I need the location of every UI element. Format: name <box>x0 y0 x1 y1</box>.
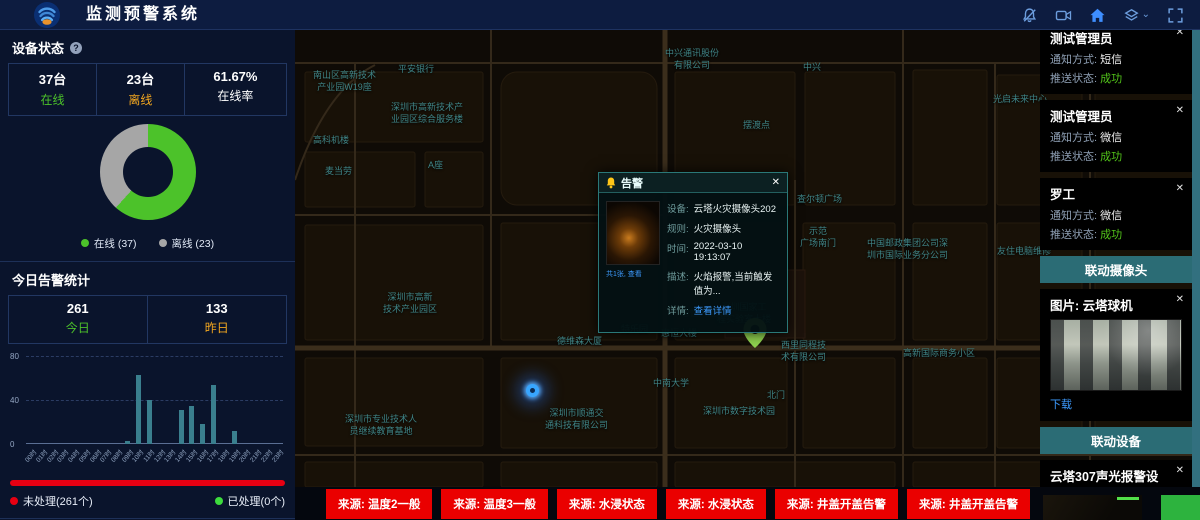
chart-bar-slot: 19时 <box>229 356 240 444</box>
unprocessed-legend-item: 未处理(261个) <box>10 493 93 509</box>
stat-label: 今日 <box>11 319 145 336</box>
red-dot-icon <box>10 497 18 505</box>
map-poi-label: 光启未来中心 <box>993 94 1047 106</box>
chart-bar-slot: 16时 <box>197 356 208 444</box>
close-icon[interactable]: ✕ <box>772 177 780 188</box>
card-row-value: 微信 <box>1100 210 1122 222</box>
close-icon[interactable]: ✕ <box>1176 105 1184 116</box>
fullscreen-icon[interactable] <box>1167 7 1184 24</box>
map-poi-label: A座 <box>428 160 443 172</box>
alert-field-label: 时间: <box>667 241 689 263</box>
legend-dot-icon <box>159 239 167 247</box>
device-status-chart-area <box>0 116 295 228</box>
alert-field-value: 云塔火灾摄像头202 <box>694 201 776 215</box>
card-row-label: 推送状态: <box>1050 229 1100 241</box>
card-row-value: 成功 <box>1100 151 1122 163</box>
chevron-down-icon: ⌄ <box>1142 10 1150 20</box>
stat-value: 61.67% <box>187 69 284 84</box>
map-poi-label: 深圳市高新技术产 业园区综合服务楼 <box>391 102 463 125</box>
map-poi-label: 深圳市顺通交 通科技有限公司 <box>545 408 608 431</box>
unprocessed-progress-bar <box>10 480 285 486</box>
alert-field-row: 规则:火灾摄像头 <box>667 221 780 235</box>
alert-snapshot-image <box>606 201 660 265</box>
card-rows: 通知方式: 微信推送状态: 成功 <box>1050 129 1182 164</box>
card-row-value: 成功 <box>1100 229 1122 241</box>
map-poi-label: 中兴 <box>803 62 821 74</box>
chart-bar-slot: 14时 <box>176 356 187 444</box>
chart-bar <box>125 441 130 444</box>
stat-label: 离线 <box>99 91 182 108</box>
card-title: 测试管理员 <box>1050 28 1182 47</box>
chart-bar <box>211 385 216 444</box>
notification-list: 测试管理员✕通知方式: 短信推送状态: 成功测试管理员✕通知方式: 微信推送状态… <box>1040 22 1192 250</box>
map-poi-label: 查尔顿广场 <box>797 194 842 206</box>
legend-label: 离线 (23) <box>172 236 215 251</box>
stat-value: 133 <box>150 301 285 316</box>
map-poi-label: 中兴通讯股份 有限公司 <box>665 48 719 71</box>
chart-bar <box>136 375 141 444</box>
stat-value: 37台 <box>11 69 94 88</box>
chart-bar-slot: 05时 <box>80 356 91 444</box>
card-row: 推送状态: 成功 <box>1050 226 1182 242</box>
chart-bar-slot: 22时 <box>261 356 272 444</box>
today-alarm-section-title: 今日告警统计 <box>0 262 295 295</box>
stat-value: 23台 <box>99 69 182 88</box>
map-poi-label: 平安银行 <box>398 64 434 76</box>
alert-popup-body: 共1张, 查看 设备:云塔火灾摄像头202规则:火灾摄像头时间:2022-03-… <box>599 193 787 332</box>
chart-bar <box>147 400 152 444</box>
alert-field-row: 时间:2022-03-10 19:13:07 <box>667 241 780 263</box>
notification-card: 测试管理员✕通知方式: 短信推送状态: 成功 <box>1040 22 1192 94</box>
device-locator-dot[interactable] <box>526 384 539 397</box>
video-camera-icon[interactable] <box>1055 7 1072 24</box>
view-details-link[interactable]: 查看详情 <box>694 303 732 317</box>
stat-cell: 23台离线 <box>97 64 185 115</box>
legend-item: 在线 (37) <box>81 236 137 251</box>
map-poi-label: 高科机楼 <box>313 135 349 147</box>
card-row-label: 推送状态: <box>1050 73 1100 85</box>
chart-bar-slot: 11时 <box>144 356 155 444</box>
alert-source-chip[interactable]: 来源: 井盖开盖告警 <box>907 489 1030 519</box>
chart-bar-slot: 13时 <box>165 356 176 444</box>
chart-bar <box>189 406 194 445</box>
y-axis-tick-label: 40 <box>10 396 19 405</box>
chart-bar-slot: 15时 <box>187 356 198 444</box>
camera-card-title: 图片: 云塔球机 <box>1050 295 1182 314</box>
alert-popup-title: 告警 <box>621 175 643 191</box>
map-poi-label: 北门 <box>767 390 785 402</box>
unprocessed-label: 未处理(261个) <box>23 493 93 509</box>
hourly-alarm-bar-chart: 00时01时02时03时04时05时06时07时08时09时10时11时12时1… <box>10 350 285 470</box>
map-poi-label: 德维森大厦 <box>557 336 602 348</box>
chart-bar-slot: 08时 <box>112 356 123 444</box>
stat-label: 在线率 <box>187 87 284 104</box>
today-alarm-title-text: 今日告警统计 <box>12 270 90 289</box>
card-row-label: 通知方式: <box>1050 210 1100 222</box>
map-poi-label: 麦当劳 <box>325 166 352 178</box>
chart-bar-slot: 06时 <box>90 356 101 444</box>
card-row: 推送状态: 成功 <box>1050 148 1182 164</box>
chart-bar-slot: 02时 <box>47 356 58 444</box>
chart-bar-slot: 03时 <box>58 356 69 444</box>
chart-bar-slot: 17时 <box>208 356 219 444</box>
stat-label: 在线 <box>11 91 94 108</box>
device-status-title-text: 设备状态 <box>12 38 64 57</box>
video-thumbnail-dark[interactable] <box>1043 495 1142 520</box>
legend-item: 离线 (23) <box>159 236 215 251</box>
card-title: 罗工 <box>1050 184 1182 203</box>
linked-device-header: 联动设备 <box>1040 427 1192 454</box>
alert-source-chip[interactable]: 来源: 水浸状态 <box>557 489 657 519</box>
card-row-label: 通知方式: <box>1050 54 1100 66</box>
chart-bar <box>179 410 184 444</box>
legend-label: 在线 (37) <box>94 236 137 251</box>
map-poi-label: 高新国际商务小区 <box>903 348 975 360</box>
layers-menu[interactable]: ⌄ <box>1123 7 1150 24</box>
layers-icon <box>1123 7 1140 24</box>
map-poi-label: 深圳市高新 技术产业园区 <box>383 292 437 315</box>
alert-source-chip[interactable]: 来源: 温度2一般 <box>326 489 432 519</box>
card-row-label: 推送状态: <box>1050 151 1100 163</box>
help-icon[interactable]: ? <box>70 42 82 54</box>
snapshot-view-link[interactable]: 共1张, 查看 <box>606 269 660 279</box>
alert-field-label: 详情: <box>667 303 689 317</box>
chart-bar <box>200 424 205 444</box>
legend-dot-icon <box>81 239 89 247</box>
chart-bar <box>232 431 237 444</box>
card-row: 通知方式: 短信 <box>1050 51 1182 67</box>
alert-popup-header: 告警 ✕ <box>599 173 787 193</box>
card-row: 通知方式: 微信 <box>1050 129 1182 145</box>
chart-bar-slot: 18时 <box>219 356 230 444</box>
alert-source-chip[interactable]: 来源: 温度3一般 <box>441 489 547 519</box>
map-poi-label: 深圳市专业技术人 员继续教育基地 <box>345 414 417 437</box>
close-icon[interactable]: ✕ <box>1176 183 1184 194</box>
progress-legend: 未处理(261个) 已处理(0个) <box>10 493 285 509</box>
page-title: 监测预警系统 <box>86 0 200 30</box>
card-row: 推送状态: 成功 <box>1050 70 1182 86</box>
map-poi-label: 深圳市数字技术园 <box>703 406 775 418</box>
stat-cell: 37台在线 <box>9 64 97 115</box>
alert-field-value: 2022-03-10 19:13:07 <box>694 241 780 263</box>
linked-camera-card: 图片: 云塔球机 ✕ 下载 <box>1040 289 1192 421</box>
card-title: 测试管理员 <box>1050 106 1182 125</box>
chart-bar-slot: 09时 <box>122 356 133 444</box>
map-poi-label: 西里同程技 术有限公司 <box>781 340 826 363</box>
stat-label: 昨日 <box>150 319 285 336</box>
donut-legend: 在线 (37)离线 (23) <box>0 234 295 252</box>
chart-bars: 00时01时02时03时04时05时06时07时08时09时10时11时12时1… <box>26 356 283 444</box>
map-poi-label: 示范 广场南门 <box>800 226 836 249</box>
alert-source-chip[interactable]: 来源: 水浸状态 <box>666 489 766 519</box>
card-rows: 通知方式: 短信推送状态: 成功 <box>1050 51 1182 86</box>
bell-muted-icon[interactable] <box>1021 7 1038 24</box>
alert-source-chip[interactable]: 来源: 井盖开盖告警 <box>775 489 898 519</box>
alert-field-label: 规则: <box>667 221 689 235</box>
map-poi-label: 中南大学 <box>653 378 689 390</box>
chart-bar-slot: 10时 <box>133 356 144 444</box>
alert-field-value: 火灾摄像头 <box>694 221 742 235</box>
notification-card: 测试管理员✕通知方式: 微信推送状态: 成功 <box>1040 100 1192 172</box>
map-poi-label: 摆渡点 <box>743 120 770 132</box>
chart-bar-slot: 04时 <box>69 356 80 444</box>
app-logo-icon <box>34 2 60 28</box>
chart-bar-slot: 21时 <box>251 356 262 444</box>
camera-snapshot-image <box>1050 319 1182 391</box>
alert-field-list: 设备:云塔火灾摄像头202规则:火灾摄像头时间:2022-03-10 19:13… <box>667 201 780 323</box>
right-panel: 测试管理员✕通知方式: 短信推送状态: 成功测试管理员✕通知方式: 微信推送状态… <box>1040 30 1192 487</box>
chart-bar-slot: 01时 <box>37 356 48 444</box>
chart-bar-slot: 12时 <box>154 356 165 444</box>
device-status-section-title: 设备状态 ? <box>0 30 295 63</box>
y-axis-tick-label: 0 <box>10 440 14 449</box>
card-row-value: 短信 <box>1100 54 1122 66</box>
card-row-value: 成功 <box>1100 73 1122 85</box>
chart-bar-slot: 20时 <box>240 356 251 444</box>
bottom-alert-bar: 来源: 温度2一般来源: 温度3一般来源: 水浸状态来源: 水浸状态来源: 井盖… <box>295 487 1200 520</box>
alert-field-label: 描述: <box>667 269 689 297</box>
chart-bar-slot: 07时 <box>101 356 112 444</box>
alert-field-row: 设备:云塔火灾摄像头202 <box>667 201 780 215</box>
alert-field-row: 详情:查看详情 <box>667 303 780 317</box>
header-icon-group: ⌄ <box>1021 0 1184 30</box>
map-poi-label: 中国邮政集团公司深 圳市国际业务分公司 <box>867 238 948 261</box>
alert-field-value: 火焰报警,当前触发值为... <box>694 269 780 297</box>
today-alarm-stats: 261今日133昨日 <box>8 295 287 344</box>
card-rows: 通知方式: 微信推送状态: 成功 <box>1050 207 1182 242</box>
device-status-stats: 37台在线23台离线61.67%在线率 <box>8 63 287 116</box>
stat-cell: 133昨日 <box>148 296 287 343</box>
alert-field-row: 描述:火焰报警,当前触发值为... <box>667 269 780 297</box>
chart-bar-slot: 00时 <box>26 356 37 444</box>
alarm-bell-icon <box>606 177 616 189</box>
left-stats-panel: 设备状态 ? 37台在线23台离线61.67%在线率 在线 (37)离线 (23… <box>0 30 295 520</box>
card-row: 通知方式: 微信 <box>1050 207 1182 223</box>
chart-bar-slot: 23时 <box>272 356 283 444</box>
device-donut <box>100 124 196 220</box>
card-row-value: 微信 <box>1100 132 1122 144</box>
close-icon[interactable]: ✕ <box>1176 294 1184 305</box>
stat-cell: 61.67%在线率 <box>185 64 286 115</box>
close-icon[interactable]: ✕ <box>1176 465 1184 476</box>
alert-popup: 告警 ✕ 共1张, 查看 设备:云塔火灾摄像头202规则:火灾摄像头时间:202… <box>598 172 788 333</box>
top-header: 监测预警系统 ⌄ <box>0 0 1200 30</box>
stat-cell: 261今日 <box>9 296 148 343</box>
map-poi-label: 南山区高新技术 产业园W19座 <box>313 70 376 93</box>
card-row-label: 通知方式: <box>1050 132 1100 144</box>
processed-label: 已处理(0个) <box>228 493 285 509</box>
home-icon[interactable] <box>1089 7 1106 24</box>
linked-camera-header: 联动摄像头 <box>1040 256 1192 283</box>
scrollbar-thumb[interactable] <box>1192 30 1200 487</box>
video-thumbnail-green[interactable] <box>1161 495 1200 520</box>
notification-card: 罗工✕通知方式: 微信推送状态: 成功 <box>1040 178 1192 250</box>
stat-value: 261 <box>11 301 145 316</box>
alert-field-label: 设备: <box>667 201 689 215</box>
processed-legend-item: 已处理(0个) <box>215 493 285 509</box>
download-link[interactable]: 下载 <box>1050 396 1072 412</box>
y-axis-tick-label: 80 <box>10 352 19 361</box>
green-dot-icon <box>215 497 223 505</box>
right-panel-scrollbar <box>1192 30 1200 487</box>
